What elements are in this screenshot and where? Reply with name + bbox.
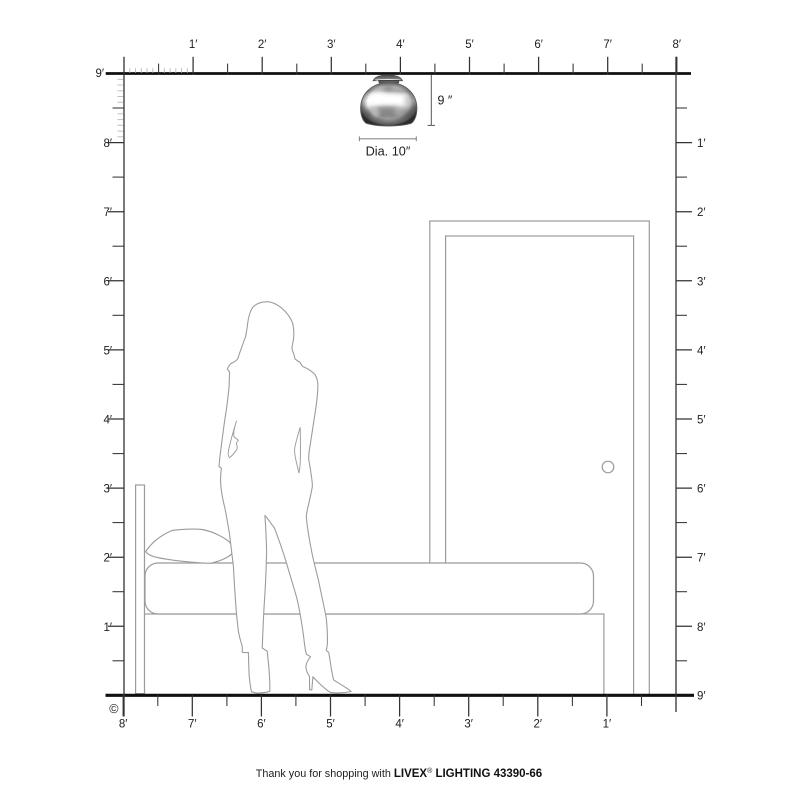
svg-text:1′: 1′ <box>103 622 112 634</box>
svg-text:6′: 6′ <box>534 39 543 51</box>
svg-text:7′: 7′ <box>697 553 706 565</box>
svg-text:8′: 8′ <box>673 39 682 51</box>
svg-text:9′: 9′ <box>697 690 706 702</box>
svg-text:1′: 1′ <box>189 39 198 51</box>
svg-text:7′: 7′ <box>103 207 112 219</box>
svg-text:5′: 5′ <box>326 719 335 731</box>
svg-text:4′: 4′ <box>103 415 112 427</box>
svg-text:3′: 3′ <box>697 276 706 288</box>
svg-text:8′: 8′ <box>119 719 128 731</box>
svg-text:3′: 3′ <box>327 39 336 51</box>
svg-text:4′: 4′ <box>396 39 405 51</box>
svg-text:3′: 3′ <box>103 484 112 496</box>
svg-text:7′: 7′ <box>603 39 612 51</box>
svg-text:9 ″: 9 ″ <box>438 94 453 108</box>
svg-text:2′: 2′ <box>697 207 706 219</box>
svg-text:2′: 2′ <box>103 553 112 565</box>
svg-text:3′: 3′ <box>464 719 473 731</box>
svg-text:Thank you for shopping with LI: Thank you for shopping with LIVEX® LIGHT… <box>256 767 542 780</box>
svg-text:6′: 6′ <box>697 484 706 496</box>
svg-text:6′: 6′ <box>103 276 112 288</box>
svg-text:1′: 1′ <box>603 719 612 731</box>
svg-text:9′: 9′ <box>95 68 104 80</box>
svg-text:7′: 7′ <box>188 719 197 731</box>
svg-text:Dia. 10″: Dia. 10″ <box>366 144 411 158</box>
svg-text:©: © <box>109 702 119 716</box>
svg-text:6′: 6′ <box>257 719 266 731</box>
svg-text:4′: 4′ <box>395 719 404 731</box>
svg-text:5′: 5′ <box>103 345 112 357</box>
svg-text:1′: 1′ <box>697 138 706 150</box>
svg-text:4′: 4′ <box>697 345 706 357</box>
svg-text:8′: 8′ <box>103 138 112 150</box>
svg-text:5′: 5′ <box>465 39 474 51</box>
svg-text:2′: 2′ <box>534 719 543 731</box>
svg-text:5′: 5′ <box>697 415 706 427</box>
svg-text:8′: 8′ <box>697 622 706 634</box>
svg-text:2′: 2′ <box>258 39 267 51</box>
